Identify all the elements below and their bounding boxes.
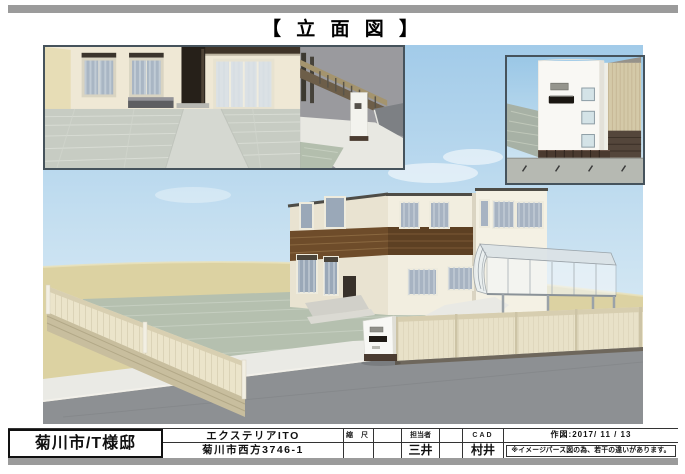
bottom-frame-bar: [8, 458, 678, 465]
ground-strip: [507, 158, 643, 183]
inset-entry-closeup: [43, 45, 405, 170]
top-frame-bar: [8, 5, 678, 13]
drawing-sheet: 【 立 面 図 】: [0, 0, 685, 474]
disclaimer-note: ※イメージパース図の為、若干の違いがあります。: [506, 445, 676, 457]
spacer-cell: [374, 443, 402, 458]
title-block: 菊川市/T様邸 エクステリアITO 菊川市西方3746-1 縮 尺 担当者 三井…: [8, 428, 678, 459]
scale-label: 縮 尺: [344, 429, 374, 443]
spacer-cell: [374, 429, 402, 443]
window-left: [82, 53, 117, 98]
company-block: エクステリアITO 菊川市西方3746-1: [163, 429, 344, 458]
date-line: 作図:2017/ 11 / 13: [504, 429, 678, 443]
gate-post-base: [364, 354, 397, 361]
paving: [45, 109, 332, 168]
mail-slot: [369, 336, 387, 342]
intercom: [372, 346, 380, 349]
shutter-box: [324, 257, 338, 262]
company-name: エクステリアITO: [163, 429, 343, 443]
inset-entry-canvas: [45, 47, 403, 168]
cad-value: 村井: [463, 443, 504, 458]
staff-label: 担当者: [402, 429, 440, 443]
step-block: [128, 97, 173, 108]
gatepost-monolith: [538, 59, 604, 157]
nameplate: [551, 83, 568, 90]
shutter-box: [297, 255, 317, 260]
gate-post: [361, 316, 401, 366]
house-background: [604, 57, 641, 158]
note-cell: ※イメージパース図の為、若干の違いがあります。: [504, 443, 678, 458]
scale-value: [344, 443, 374, 458]
window-large: [213, 59, 274, 110]
inset-gatepost-closeup: [505, 55, 645, 185]
cad-label: CAD: [463, 429, 504, 443]
project-name: 菊川市/T様邸: [8, 429, 163, 458]
gate-post-small: [350, 92, 369, 140]
page-title: 【 立 面 図 】: [0, 14, 685, 41]
spacer-cell: [440, 429, 463, 443]
nameplate: [370, 327, 383, 332]
staff-value: 三井: [402, 443, 440, 458]
inset-gatepost-canvas: [507, 57, 643, 183]
company-address: 菊川市西方3746-1: [163, 443, 343, 458]
window-middle: [129, 53, 164, 98]
main-perspective-render: [43, 45, 643, 424]
spacer-cell: [440, 443, 463, 458]
roof-edge: [191, 47, 318, 54]
street-view-right: [300, 47, 403, 168]
glass-blocks: [582, 88, 595, 147]
